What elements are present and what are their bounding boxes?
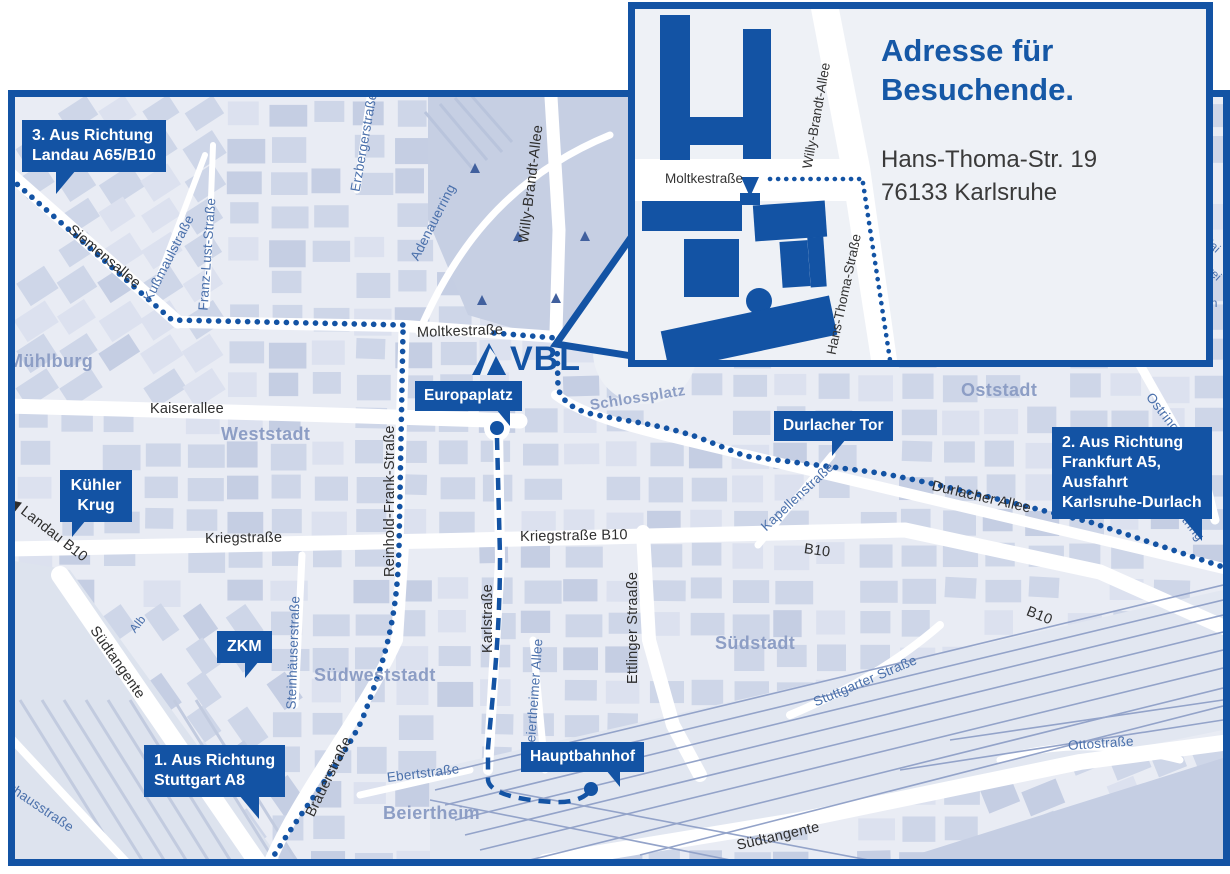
address-line-1: Hans-Thoma-Str. 19 [881, 143, 1097, 176]
district-label-suedstadt: Südstadt [715, 633, 795, 654]
callout-durlacher-tor: Durlacher Tor [774, 411, 893, 441]
visitor-address-inset: MoltkestraßeWilly-Brandt-AlleeHans-Thoma… [628, 2, 1213, 367]
callout-line: Durlacher Tor [783, 416, 884, 436]
street-label-b10_mid: B10 [803, 541, 831, 561]
callout-line: Europaplatz [424, 386, 513, 406]
callout-line: 2. Aus Richtung [1062, 433, 1202, 453]
street-label-moltkestrasse: Moltkestraße [417, 322, 504, 341]
callout-line: ZKM [227, 637, 262, 657]
callout-line: Karlsruhe-Durlach [1062, 493, 1202, 513]
callout-pointer [72, 520, 86, 537]
callout-line: Hauptbahnhof [530, 747, 635, 767]
street-label-reinhold_frank: Reinhold-Frank-Straße [382, 425, 398, 577]
district-label-suedweststadt: Südweststadt [314, 665, 436, 686]
callout-pointer [1182, 517, 1202, 541]
address-line-2: 76133 Karlsruhe [881, 176, 1097, 209]
street-label-kriegstrasse: Kriegstraße [205, 530, 282, 547]
callout-route-1-stuttgart: 1. Aus RichtungStuttgart A8 [144, 745, 285, 797]
street-label-ettlinger: Ettlinger Straaße [625, 572, 641, 684]
vbl-triangle-icon [470, 341, 508, 377]
callout-pointer [832, 439, 846, 456]
hauptbahnhof-stop-dot [584, 782, 598, 796]
callout-route-2-frankfurt: 2. Aus RichtungFrankfurt A5,AusfahrtKarl… [1052, 427, 1212, 519]
street-label-kriegstrasse_b10: Kriegstraße B10 [520, 527, 628, 545]
callout-line: 3. Aus Richtung [32, 126, 156, 146]
callout-pointer [245, 661, 259, 678]
callout-pointer [56, 170, 76, 194]
callout-pointer [496, 409, 510, 426]
callout-line: Frankfurt A5, [1062, 453, 1202, 473]
callout-pointer [606, 770, 620, 787]
callout-line: Ausfahrt [1062, 473, 1202, 493]
callout-line: 1. Aus Richtung [154, 751, 275, 771]
district-label-beiertheim: Beiertheim [383, 803, 480, 824]
callout-pointer [239, 795, 259, 819]
callout-line: Stuttgart A8 [154, 771, 275, 791]
callout-route-3-landau: 3. Aus RichtungLandau A65/B10 [22, 120, 166, 172]
inset-heading: Adresse für Besuchende. [881, 31, 1131, 109]
street-label-kaiserallee: Kaiserallee [150, 401, 224, 417]
inset-street-label-moltke_inset: Moltkestraße [665, 171, 743, 186]
callout-line: Krug [70, 496, 122, 516]
vbl-logo-text: VBL [510, 341, 581, 377]
callout-zkm: ZKM [217, 631, 272, 663]
inset-address: Hans-Thoma-Str. 19 76133 Karlsruhe [881, 143, 1097, 209]
callout-kuehler-krug: KühlerKrug [60, 470, 132, 522]
vbl-logo: VBL [470, 341, 581, 377]
street-label-karlstrasse: Karlstraße [480, 584, 496, 653]
callout-europaplatz: Europaplatz [415, 381, 522, 411]
district-label-oststadt: Oststadt [961, 380, 1037, 401]
district-label-weststadt: Weststadt [221, 424, 310, 445]
callout-hauptbahnhof: Hauptbahnhof [521, 742, 644, 772]
callout-line: Kühler [70, 476, 122, 496]
callout-line: Landau A65/B10 [32, 146, 156, 166]
district-label-muehlburg: Mühlburg [8, 351, 93, 372]
karlsruhe-directions-map: SiemensalleeKußmaulstraßeFranz-Lust-Stra… [0, 0, 1230, 874]
